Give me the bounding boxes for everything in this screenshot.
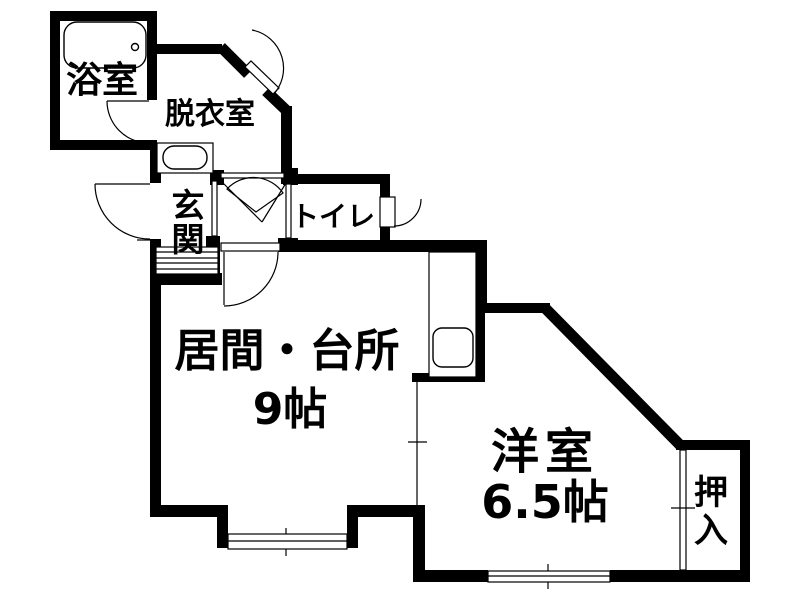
bath-door <box>107 101 149 143</box>
hall-living-door <box>224 252 278 306</box>
room-labels: 浴室 脱衣室 玄 関 トイレ 居間・台所 9帖 洋室 6.5帖 押 入 <box>66 60 728 551</box>
bathtub-drain-icon <box>132 44 139 51</box>
porch-door <box>245 30 284 96</box>
dressing-room-label: 脱衣室 <box>165 97 255 132</box>
living-kitchen-label: 居間・台所 <box>174 324 399 377</box>
hall-west-opening <box>212 181 217 236</box>
doors <box>95 30 421 306</box>
kitchen-sink-icon <box>433 328 473 367</box>
washbasin-bowl-icon <box>163 146 207 169</box>
exterior-walls <box>50 11 750 582</box>
western-room-area: 6.5帖 <box>481 475 609 529</box>
floor-plan: 浴室 脱衣室 玄 関 トイレ 居間・台所 9帖 洋室 6.5帖 押 入 <box>0 0 800 600</box>
washbasin-icon <box>157 143 213 173</box>
south-window <box>488 571 610 582</box>
kitchen-counter-icon <box>429 252 476 377</box>
western-room-label: 洋室 <box>491 424 599 480</box>
hall-south-threshold <box>221 243 280 251</box>
toilet-door <box>380 197 421 227</box>
living-kitchen-area: 9帖 <box>253 384 328 435</box>
bathroom-label: 浴室 <box>66 60 138 101</box>
entrance-label-char2: 関 <box>172 220 205 259</box>
toilet-label: トイレ <box>291 200 375 233</box>
floor-plan-canvas: 浴室 脱衣室 玄 関 トイレ 居間・台所 9帖 洋室 6.5帖 押 入 <box>0 0 800 600</box>
front-door <box>95 184 150 239</box>
closet-partition <box>680 450 686 570</box>
bay-window <box>228 534 347 549</box>
closet-label-char2: 入 <box>694 511 728 551</box>
closet-label-char1: 押 <box>694 473 728 513</box>
hall-door-motif <box>221 177 286 222</box>
